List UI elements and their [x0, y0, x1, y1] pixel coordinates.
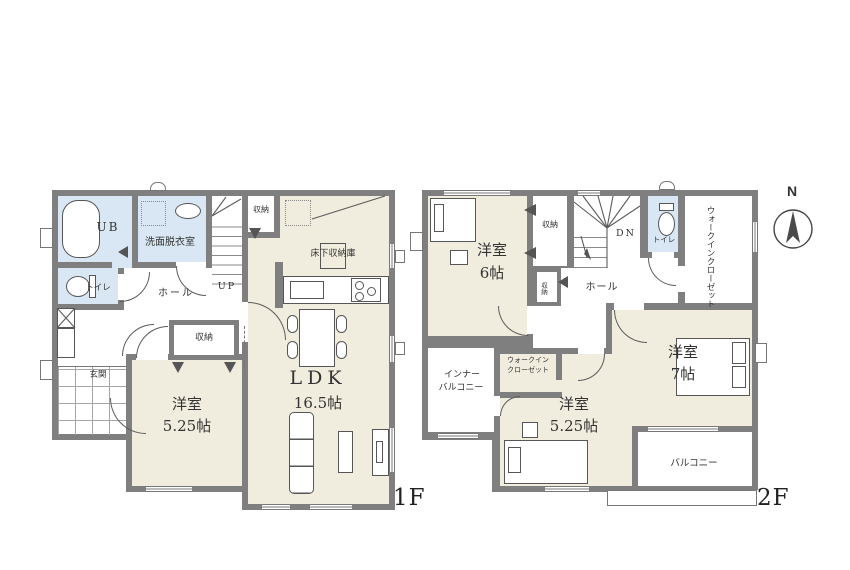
- label-up: UP: [206, 282, 248, 292]
- folding-door-mark: [249, 228, 261, 239]
- label-yoshitsu-1f-name: 洋室: [132, 397, 242, 412]
- label-ub: UB: [86, 221, 130, 233]
- label-senmen: 洗面脱衣室: [128, 238, 212, 248]
- label-closet-mid-1f: 収納: [184, 334, 224, 343]
- label-yoshitsu525-size: 5.25帖: [534, 419, 614, 434]
- folding-door-mark: [172, 362, 184, 373]
- folding-door-mark: [118, 246, 128, 258]
- label-toilet-2f: トイレ: [646, 236, 682, 244]
- label-ldk-size: 16.5帖: [278, 396, 358, 411]
- label-yukashita: 床下収納庫: [299, 250, 367, 259]
- label-wic-small-1: ウォークイン: [500, 357, 556, 364]
- floor-plan-canvas: UB 洗面脱衣室 トイレ ホール UP 収納 収納 玄関 洋室 5.25帖 LD…: [0, 0, 850, 570]
- f2-stair-fan-line: [607, 206, 640, 228]
- label-balcony: バルコニー: [662, 459, 726, 469]
- label-yoshitsu525-name: 洋室: [534, 397, 614, 412]
- label-wic-small-2: クローゼット: [500, 367, 556, 374]
- label-toilet-1f: トイレ: [76, 284, 120, 293]
- label-closet-a-2f: 収納: [535, 221, 565, 229]
- label-yoshitsu6-size: 6帖: [447, 266, 537, 281]
- f1-stair-winder-line: [212, 197, 226, 216]
- floor-tag-1f: 1F: [393, 485, 426, 511]
- label-hall-1f: ホール: [150, 289, 202, 299]
- label-yoshitsu7-size: 7帖: [643, 367, 723, 382]
- label-genkan: 玄関: [82, 371, 114, 380]
- label-yoshitsu-1f-size: 5.25帖: [132, 419, 242, 434]
- label-ldk-name: LDK: [278, 369, 358, 388]
- f2-stair-fan-line: [598, 196, 607, 228]
- label-wic-main: ウォークインクローゼット: [703, 206, 716, 286]
- compass-north-label: N: [787, 183, 797, 199]
- folding-door-mark: [224, 362, 236, 373]
- floor-tag-2f: 2F: [757, 485, 790, 511]
- label-yoshitsu6-name: 洋室: [447, 243, 537, 258]
- compass-needle-icon: [786, 211, 800, 243]
- compass: [774, 210, 812, 248]
- label-dn: DN: [611, 229, 641, 239]
- label-hall-2f: ホール: [576, 283, 628, 293]
- f1-ldk-slope-line: [312, 196, 385, 219]
- label-inner-balcony-1: インナー: [436, 371, 488, 380]
- label-closet-b-2f: 収納: [540, 273, 547, 303]
- f1-stair-winder-line: [212, 199, 241, 216]
- folding-door-mark: [524, 204, 536, 216]
- folding-door-mark: [558, 276, 568, 288]
- label-yoshitsu7-name: 洋室: [643, 345, 723, 360]
- label-closet-stairs-1f: 収納: [246, 206, 276, 214]
- label-inner-balcony-2: バルコニー: [428, 384, 494, 393]
